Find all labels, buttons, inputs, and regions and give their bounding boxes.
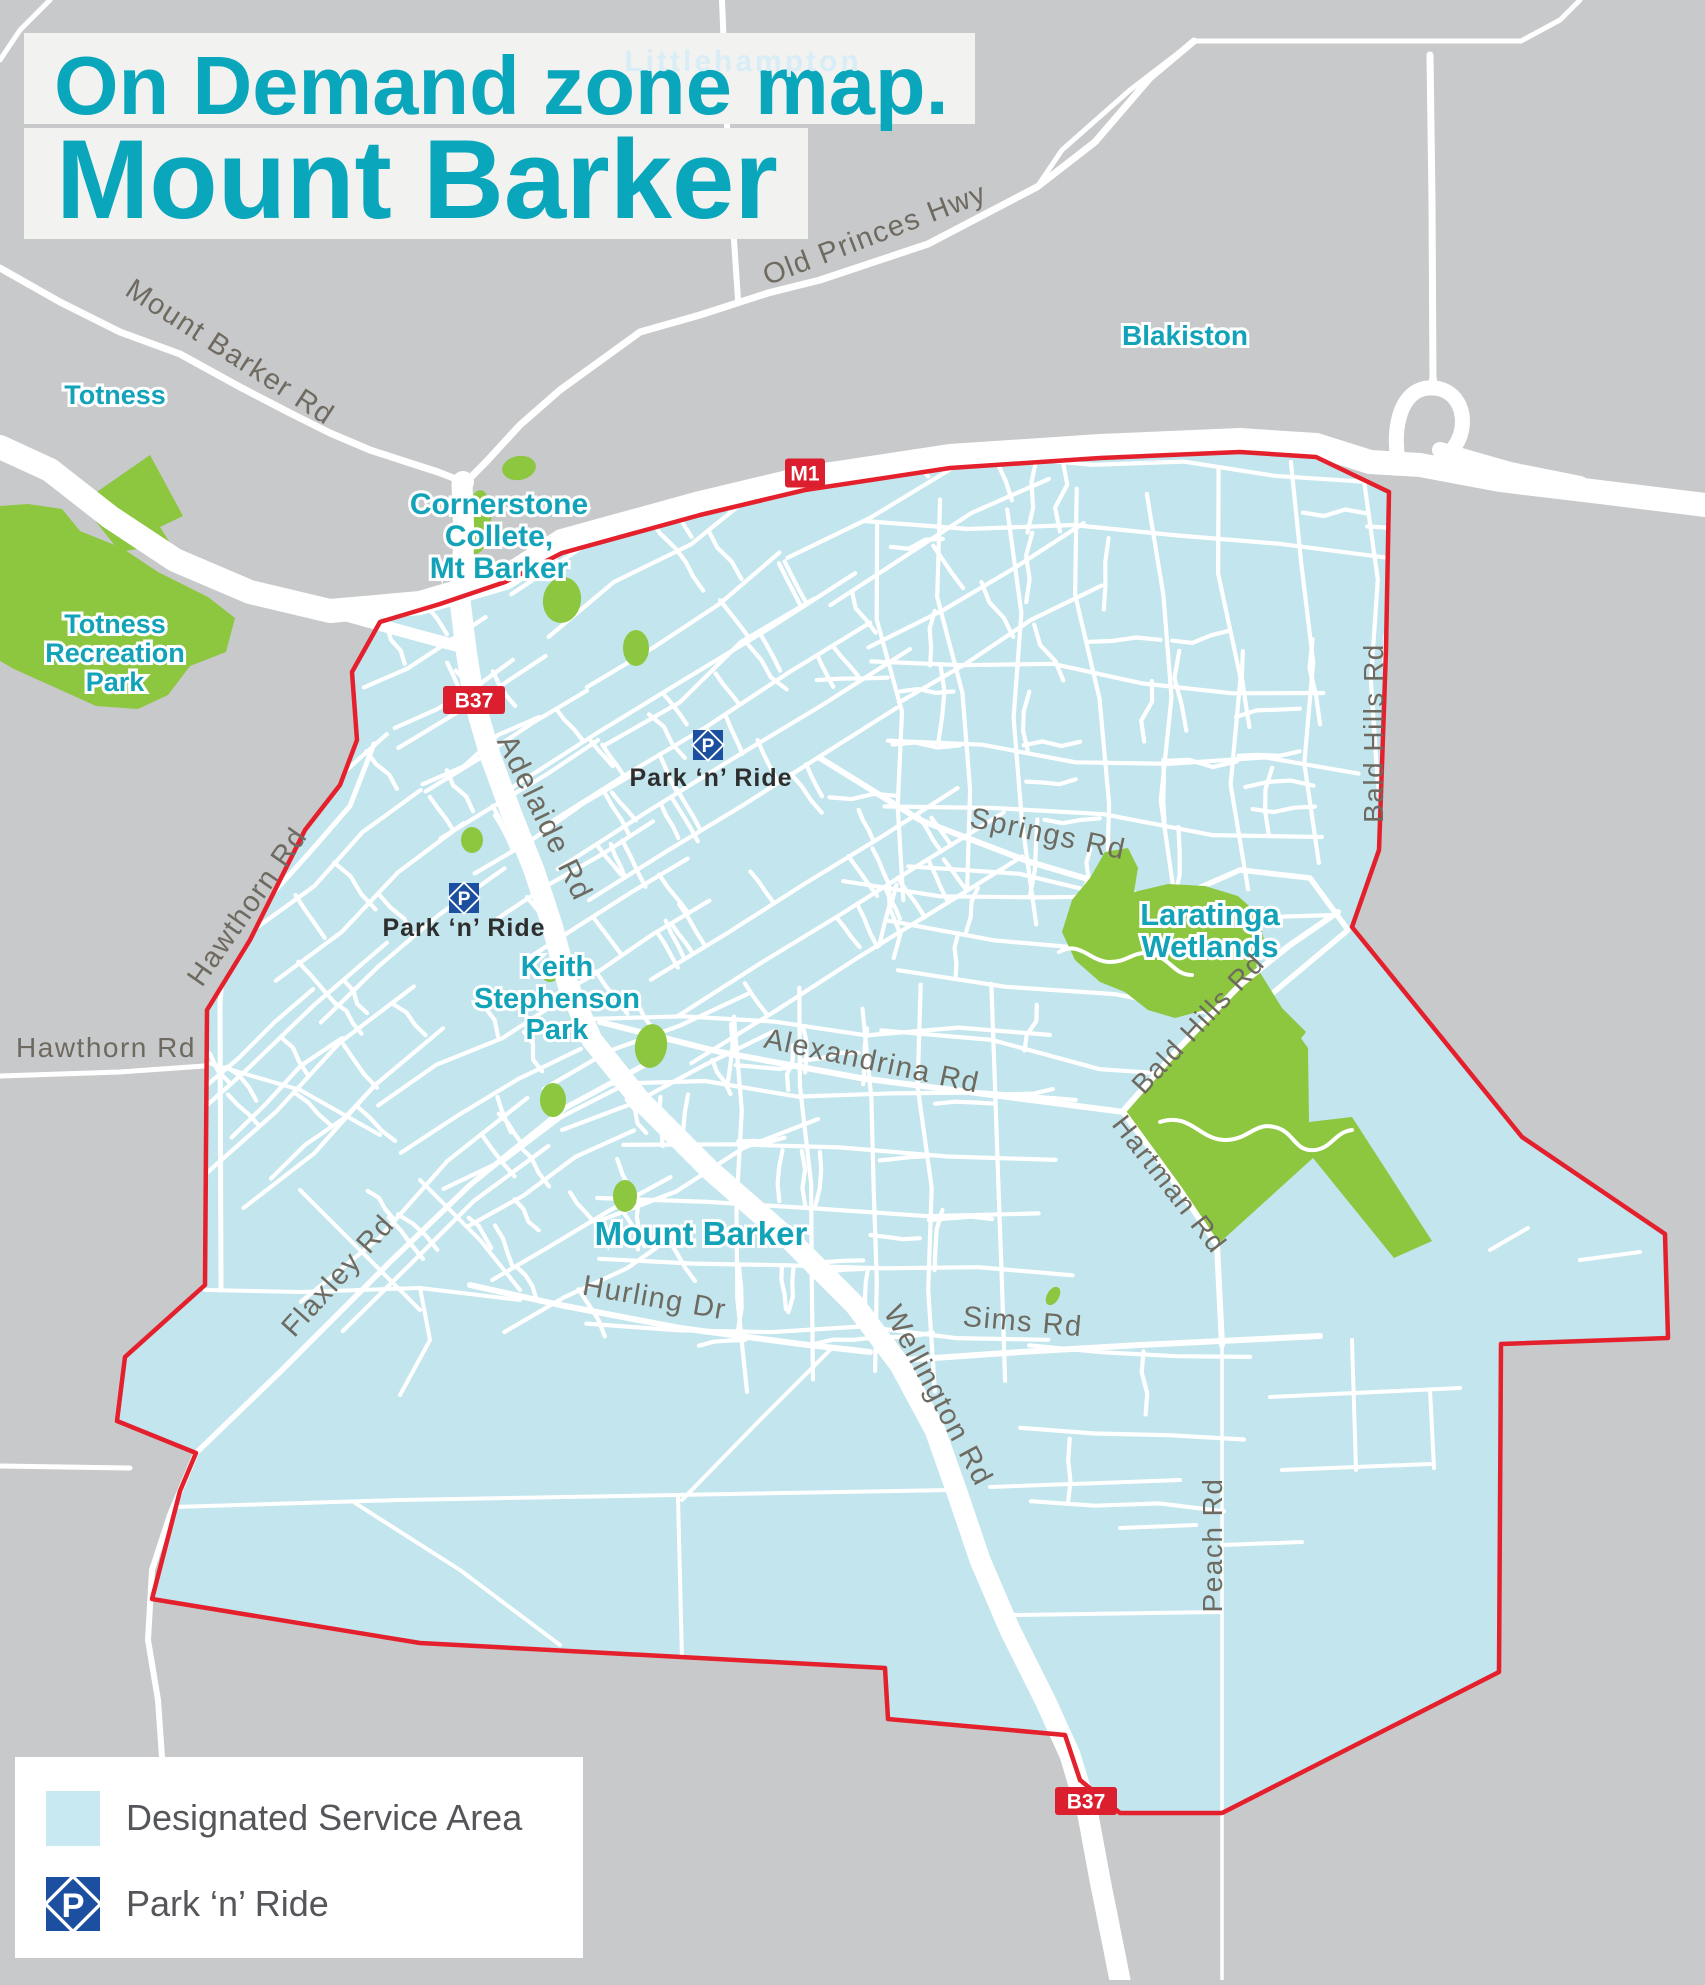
svg-text:Designated Service Area: Designated Service Area [126,1797,523,1838]
svg-text:Park: Park [86,667,146,697]
svg-text:Littlehampton: Littlehampton [624,45,861,78]
svg-text:Blakiston: Blakiston [1122,320,1248,351]
svg-text:Cornerstone: Cornerstone [410,488,588,521]
svg-text:Stephenson: Stephenson [474,983,640,1015]
svg-text:B37: B37 [455,690,494,713]
svg-text:Mount Barker: Mount Barker [56,117,778,242]
svg-text:Totness: Totness [64,380,166,410]
svg-text:M1: M1 [790,463,819,486]
svg-text:Mt Barker: Mt Barker [430,552,569,585]
svg-text:Collete,: Collete, [445,520,553,553]
svg-text:Bald Hills Rd: Bald Hills Rd [1358,643,1389,823]
svg-text:Recreation: Recreation [45,638,185,668]
svg-text:Totness: Totness [64,609,166,639]
svg-text:Keith: Keith [521,951,594,983]
svg-text:P: P [61,1887,84,1925]
svg-text:P: P [458,889,471,910]
svg-text:Peach Rd: Peach Rd [1197,1478,1228,1613]
svg-text:Park ‘n’ Ride: Park ‘n’ Ride [382,914,545,942]
svg-text:Park ‘n’ Ride: Park ‘n’ Ride [126,1883,329,1924]
svg-text:B37: B37 [1067,1791,1106,1814]
svg-text:Park ‘n’ Ride: Park ‘n’ Ride [629,764,792,792]
svg-text:Park: Park [526,1014,590,1046]
svg-text:P: P [702,736,715,757]
svg-text:Hawthorn Rd: Hawthorn Rd [16,1032,196,1063]
svg-text:Laratinga: Laratinga [1140,897,1280,932]
svg-text:Mount Barker: Mount Barker [595,1215,808,1252]
